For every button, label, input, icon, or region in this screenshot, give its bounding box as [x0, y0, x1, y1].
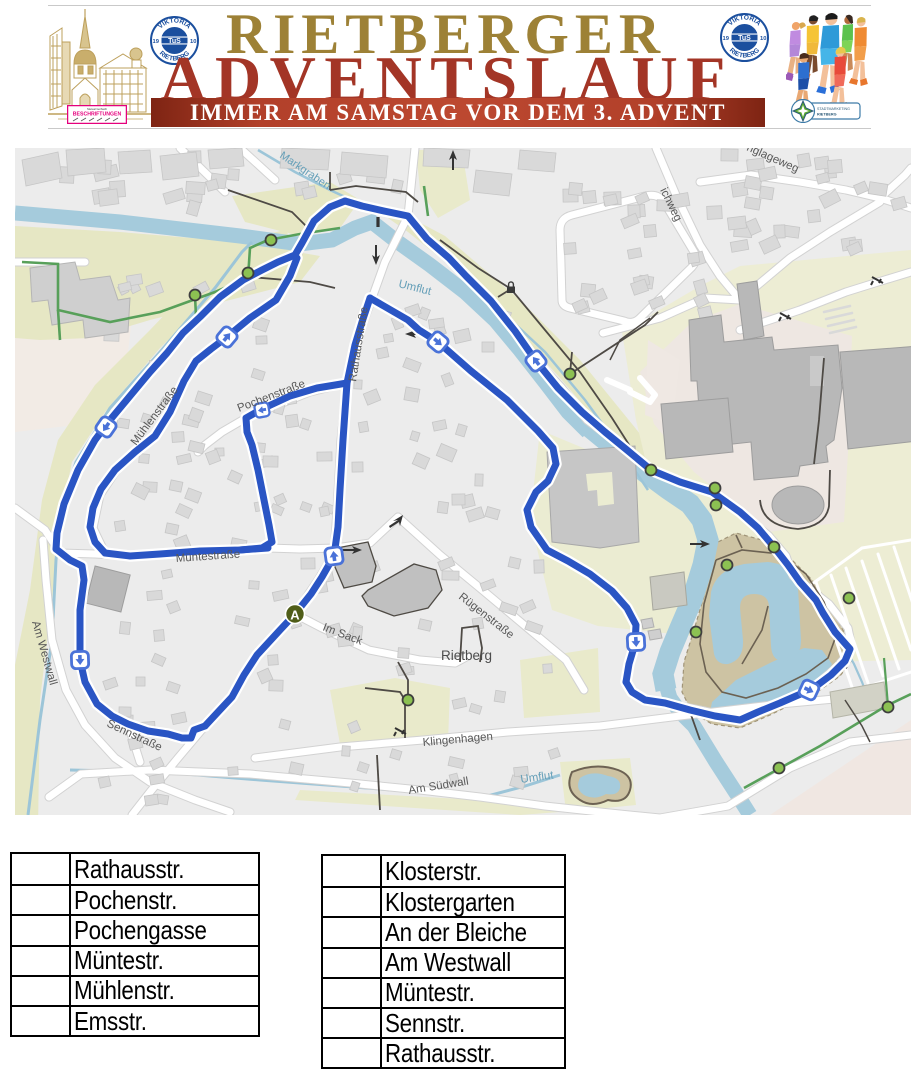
svg-text:Rietberg: Rietberg	[441, 648, 492, 663]
svg-text:Manuel Gerhardt: Manuel Gerhardt	[87, 107, 107, 111]
svg-text:RIETBERG: RIETBERG	[817, 113, 837, 117]
svg-text:A: A	[290, 608, 300, 623]
svg-text:STADTMARKETING: STADTMARKETING	[817, 107, 850, 111]
svg-text:BESCHRIFTUNGEN: BESCHRIFTUNGEN	[73, 112, 122, 118]
